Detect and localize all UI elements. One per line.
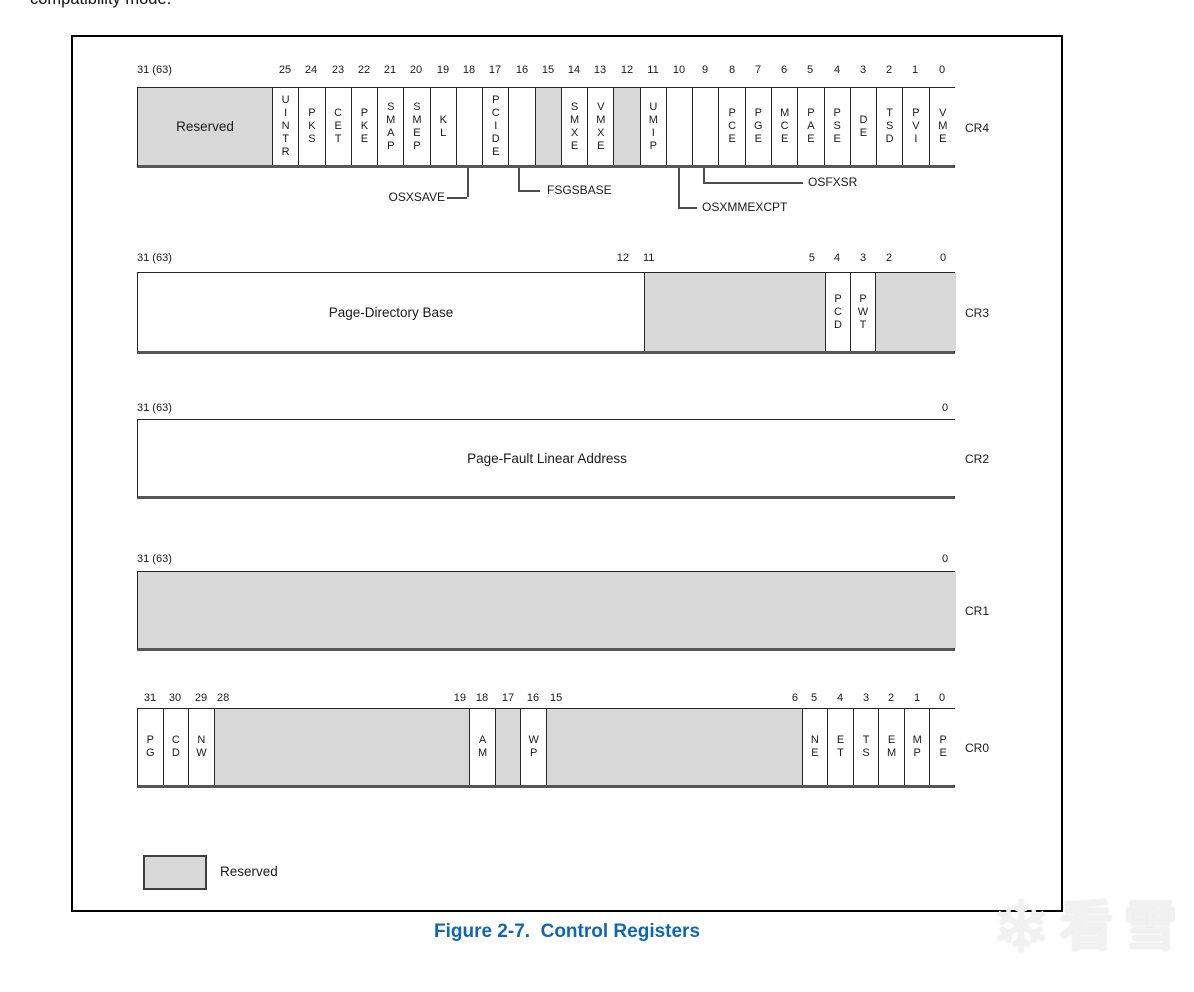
field-pe-0: P E — [930, 709, 956, 785]
field-label: P K E — [361, 107, 368, 146]
field-reserved-28-19 — [215, 709, 471, 785]
bit-tick: 31 (63) — [137, 64, 172, 76]
bit-tick: 2 — [886, 64, 892, 76]
bit-tick: 31 — [144, 692, 156, 704]
field-label: Page-Fault Linear Address — [467, 451, 627, 466]
bit-tick: 5 — [807, 64, 813, 76]
field-tsd-2: T S D — [877, 88, 903, 165]
bit-tick: 16 — [527, 692, 539, 704]
bit-tick: 3 — [860, 64, 866, 76]
field-smxe-14: S M X E — [562, 88, 588, 165]
field-label: N W — [196, 734, 206, 760]
watermark-text: 看雪 — [1059, 897, 1187, 957]
field-reserved-15-6 — [547, 709, 803, 785]
bit-tick: 22 — [358, 64, 370, 76]
bit-tick: 11 — [643, 252, 654, 264]
field-label: N E — [811, 734, 819, 760]
field-label: P C D — [834, 293, 842, 332]
callout-line-osfxsr — [703, 168, 705, 182]
field-label: P C E — [728, 107, 736, 146]
bit-tick: 20 — [410, 64, 422, 76]
callout-label-fsgsbase: FSGSBASE — [547, 183, 612, 197]
field-pg-31: P G — [138, 709, 164, 785]
register-box-cr0: P GC DN WA MW PN EE TT SE MM PP E — [137, 708, 955, 788]
bit-tick: 12 — [617, 252, 629, 264]
figure-caption: Figure 2-7. Control Registers — [71, 921, 1063, 943]
register-name-label: CR1 — [965, 604, 989, 618]
field-cet-23: C E T — [326, 88, 352, 165]
field-label: S M A P — [386, 101, 395, 153]
field-reserved-11-5 — [645, 273, 826, 351]
callout-line-osxmmexcpt — [678, 207, 697, 209]
field-label: E T — [837, 734, 844, 760]
field-label: P S E — [833, 107, 840, 146]
field-bit-16 — [509, 88, 535, 165]
bit-tick: 4 — [834, 252, 840, 264]
register-name-label: CR3 — [965, 306, 989, 320]
callout-label-osxsave: OSXSAVE — [389, 190, 445, 204]
field-pcd-4: P C D — [826, 273, 851, 351]
bit-tick: 3 — [863, 692, 869, 704]
bit-tick: 1 — [912, 64, 918, 76]
bit-tick: 7 — [755, 64, 761, 76]
field-pke-22: P K E — [352, 88, 378, 165]
field-label: K L — [440, 114, 447, 140]
field-label: W P — [528, 734, 538, 760]
callout-label-osxmmexcpt: OSXMMEXCPT — [702, 200, 787, 214]
field-label: P V I — [912, 107, 919, 146]
field-pae-5: P A E — [798, 88, 824, 165]
field-reserved-31-26: Reserved — [138, 88, 273, 165]
bit-tick: 3 — [860, 252, 866, 264]
field-label: P K S — [308, 107, 315, 146]
field-label: A M — [478, 734, 487, 760]
bit-tick: 24 — [305, 64, 317, 76]
field-umip-11: U M I P — [641, 88, 667, 165]
bit-tick: 2 — [888, 692, 894, 704]
field-smap-21: S M A P — [378, 88, 404, 165]
bit-tick: 18 — [463, 64, 475, 76]
document-page: compatibility mode. 31 (63)2524232221201… — [0, 0, 1194, 992]
bit-tick: 17 — [502, 692, 514, 704]
field-cd-30: C D — [164, 709, 190, 785]
callout-line-osxsave — [467, 168, 469, 197]
field-reserved-2-0 — [876, 273, 956, 351]
field-am-18: A M — [470, 709, 496, 785]
bit-tick: 1 — [914, 692, 920, 704]
field-page-directory-base-31-12: Page-Directory Base — [138, 273, 645, 351]
bit-tick: 0 — [940, 252, 946, 264]
bit-tick: 30 — [169, 692, 181, 704]
field-label: M P — [913, 734, 922, 760]
field-reserved-12 — [614, 88, 640, 165]
legend-reserved-swatch — [143, 855, 207, 890]
callout-label-osfxsr: OSFXSR — [808, 175, 857, 189]
field-label: E M — [887, 734, 896, 760]
legend-label: Reserved — [220, 864, 278, 879]
field-pvi-1: P V I — [903, 88, 929, 165]
bit-tick: 10 — [673, 64, 685, 76]
register-box-cr1 — [137, 571, 955, 651]
field-label: U I N T R — [282, 94, 290, 159]
register-name-label: CR0 — [965, 741, 989, 755]
bit-tick: 14 — [568, 64, 580, 76]
register-name-label: CR4 — [965, 121, 989, 135]
bit-tick: 0 — [939, 692, 945, 704]
field-et-4: E T — [828, 709, 854, 785]
bit-tick: 4 — [837, 692, 843, 704]
field-label: Page-Directory Base — [329, 305, 454, 320]
bit-tick: 0 — [939, 64, 945, 76]
field-smep-20: S M E P — [404, 88, 430, 165]
field-mp-1: M P — [905, 709, 931, 785]
bit-tick: 4 — [834, 64, 840, 76]
bit-tick: 18 — [476, 692, 488, 704]
bit-tick: 15 — [542, 64, 554, 76]
field-label: P E — [940, 734, 947, 760]
field-label: S M X E — [570, 101, 579, 153]
field-reserved-15 — [536, 88, 562, 165]
field-ts-3: T S — [854, 709, 880, 785]
field-label: U M I P — [649, 101, 658, 153]
field-pse-4: P S E — [825, 88, 851, 165]
field-ne-5: N E — [803, 709, 829, 785]
callout-line-osfxsr — [703, 182, 803, 184]
field-vme-0: V M E — [930, 88, 956, 165]
field-kl-19: K L — [431, 88, 457, 165]
field-em-2: E M — [879, 709, 905, 785]
field-label: P A E — [807, 107, 814, 146]
field-pwt-3: P W T — [851, 273, 876, 351]
bit-tick: 5 — [809, 252, 815, 264]
field-vmxe-13: V M X E — [588, 88, 614, 165]
bit-tick: 19 — [437, 64, 449, 76]
bit-tick: 8 — [729, 64, 735, 76]
field-label: P W T — [858, 293, 868, 332]
field-de-3: D E — [851, 88, 877, 165]
bit-tick: 15 — [550, 692, 562, 704]
bit-tick: 19 — [454, 692, 466, 704]
bit-tick: 17 — [489, 64, 501, 76]
field-label: V M E — [938, 107, 947, 146]
field-label: M C E — [780, 107, 789, 146]
field-page-fault-linear-address-31-0: Page-Fault Linear Address — [138, 420, 956, 496]
field-reserved-17 — [496, 709, 522, 785]
field-label: S M E P — [412, 101, 421, 153]
field-label: C D — [172, 734, 180, 760]
register-name-label: CR2 — [965, 452, 989, 466]
field-nw-29: N W — [189, 709, 215, 785]
bit-tick: 31 (63) — [137, 252, 172, 264]
field-bit-18 — [457, 88, 483, 165]
field-bit-9 — [693, 88, 719, 165]
field-label: Reserved — [176, 119, 234, 134]
field-wp-16: W P — [521, 709, 547, 785]
bit-tick: 0 — [942, 553, 948, 565]
field-pce-8: P C E — [720, 88, 746, 165]
field-label: P G E — [754, 107, 763, 146]
field-label: C E T — [334, 107, 342, 146]
bit-tick: 12 — [621, 64, 633, 76]
kanxue-watermark: ❄ 看雪 — [991, 891, 1187, 963]
bit-tick: 11 — [647, 64, 658, 76]
field-label: P G — [146, 734, 155, 760]
bit-tick: 31 (63) — [137, 553, 172, 565]
bit-tick: 6 — [781, 64, 787, 76]
snowflake-icon: ❄ — [991, 891, 1051, 963]
bit-tick: 2 — [886, 252, 892, 264]
clipped-body-text: compatibility mode. — [30, 0, 171, 9]
field-label: P C I D E — [492, 94, 500, 159]
register-box-cr4: ReservedU I N T RP K SC E TP K ES M A PS… — [137, 87, 955, 168]
field-label: T S D — [886, 107, 894, 146]
field-label: T S — [862, 734, 869, 760]
bit-tick: 16 — [516, 64, 528, 76]
callout-line-fsgsbase — [518, 168, 520, 190]
bit-tick: 31 (63) — [137, 402, 172, 414]
field-pge-7: P G E — [746, 88, 772, 165]
field-mce-6: M C E — [772, 88, 798, 165]
bit-tick: 25 — [279, 64, 291, 76]
field-pks-24: P K S — [299, 88, 325, 165]
field-reserved-31-0 — [138, 572, 956, 648]
bit-tick: 21 — [384, 64, 396, 76]
field-uintr-25: U I N T R — [273, 88, 299, 165]
callout-line-osxsave — [447, 197, 467, 199]
bit-tick: 9 — [702, 64, 708, 76]
callout-line-osxmmexcpt — [678, 168, 680, 207]
bit-tick: 23 — [332, 64, 344, 76]
callout-line-fsgsbase — [518, 190, 540, 192]
register-box-cr3: Page-Directory BaseP C DP W T — [137, 272, 955, 354]
bit-tick: 28 — [217, 692, 229, 704]
bit-tick: 13 — [594, 64, 606, 76]
register-box-cr2: Page-Fault Linear Address — [137, 419, 955, 499]
bit-tick: 5 — [811, 692, 817, 704]
field-label: V M X E — [596, 101, 605, 153]
field-bit-10 — [667, 88, 693, 165]
bit-tick: 6 — [792, 692, 798, 704]
bit-tick: 0 — [942, 402, 948, 414]
field-pcide-17: P C I D E — [483, 88, 509, 165]
bit-tick: 29 — [195, 692, 207, 704]
field-label: D E — [859, 114, 867, 140]
